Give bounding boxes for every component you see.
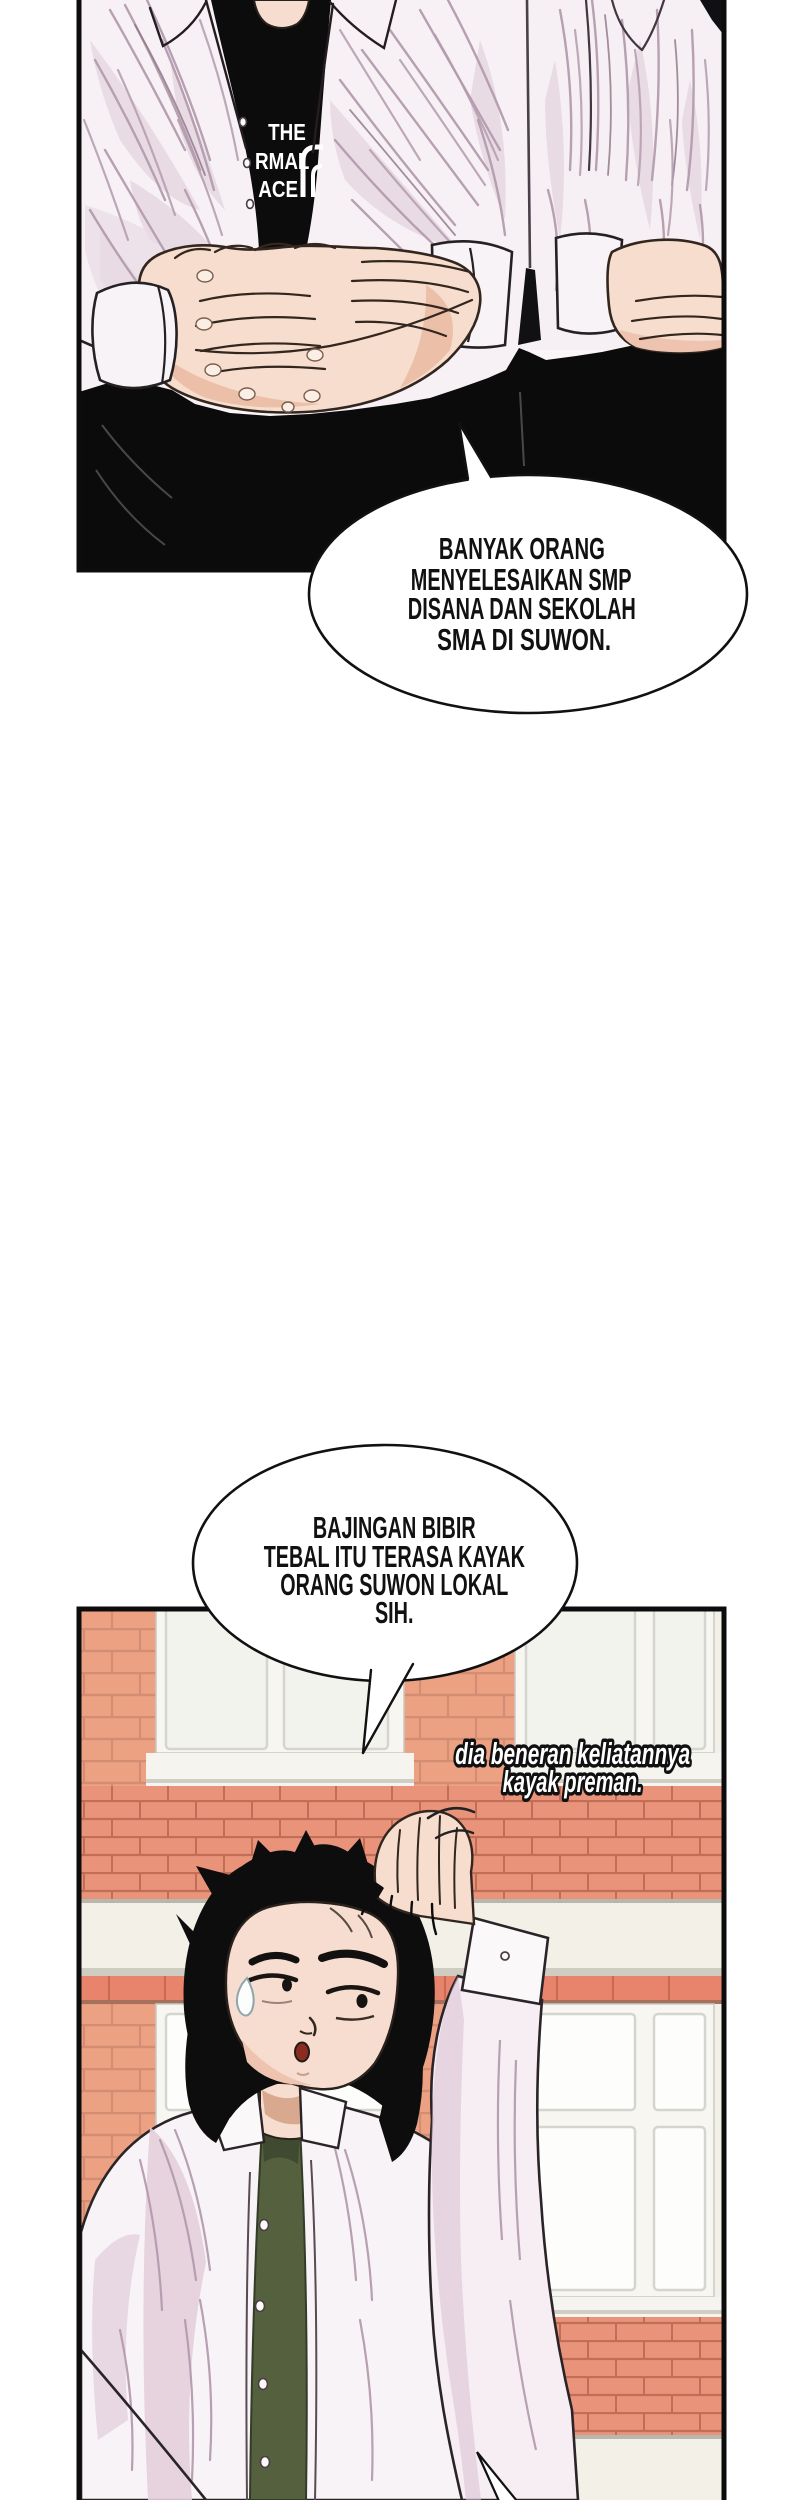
svg-text:SMA DI SUWON.: SMA DI SUWON. [437,622,611,657]
svg-text:kayak preman.: kayak preman. [503,1764,643,1800]
svg-text:SIH.: SIH. [375,1594,414,1630]
svg-text:RMAL: RMAL [255,149,310,174]
svg-text:DISANA DAN SEKOLAH: DISANA DAN SEKOLAH [408,590,636,626]
svg-text:THE: THE [268,120,306,145]
svg-text:ACE: ACE [258,177,298,202]
